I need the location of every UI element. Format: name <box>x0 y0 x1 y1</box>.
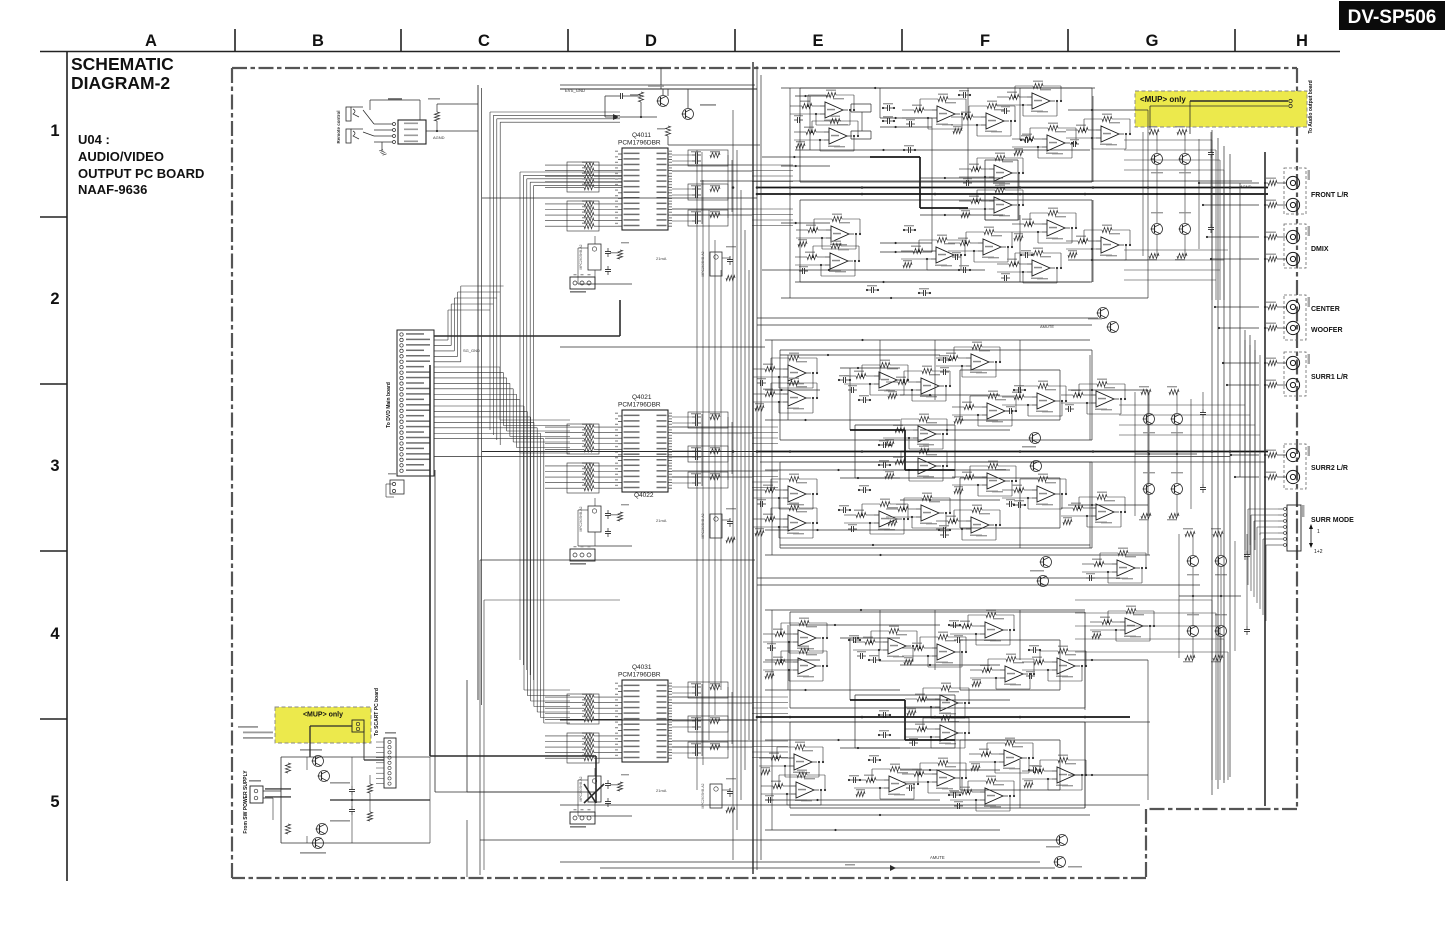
svg-text:Q4011: Q4011 <box>632 132 651 139</box>
svg-text:AUDIO/VIDEO: AUDIO/VIDEO <box>78 149 164 164</box>
svg-text:F: F <box>980 32 990 50</box>
svg-text:To SCART PC board: To SCART PC board <box>374 688 380 736</box>
svg-text:OUTPUT PC BOARD: OUTPUT PC BOARD <box>78 166 204 181</box>
svg-text:21mA: 21mA <box>656 788 667 793</box>
svg-text:2: 2 <box>50 290 59 308</box>
svg-text:Q4022: Q4022 <box>634 492 654 499</box>
svg-text:3: 3 <box>50 457 59 475</box>
svg-text:AGND: AGND <box>1240 184 1252 189</box>
svg-text:NAAF-9636: NAAF-9636 <box>78 182 147 197</box>
svg-text:21mA: 21mA <box>656 518 667 523</box>
svg-text:SURR MODE: SURR MODE <box>1311 517 1354 524</box>
svg-text:SURR1 L/R: SURR1 L/R <box>1311 374 1348 381</box>
svg-text:WOOFER: WOOFER <box>1311 327 1343 334</box>
svg-text:SURR2 L/R: SURR2 L/R <box>1311 465 1348 472</box>
svg-text:A: A <box>145 32 157 50</box>
svg-text:21mA: 21mA <box>656 256 667 261</box>
svg-text:SG_GND: SG_GND <box>463 348 480 353</box>
svg-text:E: E <box>812 32 823 50</box>
svg-text:DMIX: DMIX <box>1311 246 1329 253</box>
svg-text:C: C <box>478 32 490 50</box>
svg-text:<MUP> only: <MUP> only <box>303 712 343 719</box>
svg-text:1: 1 <box>50 122 59 140</box>
svg-text:Q4031: Q4031 <box>632 664 652 671</box>
svg-text:4: 4 <box>50 625 60 643</box>
svg-text:B: B <box>312 32 324 50</box>
svg-text:PCM1796DBR: PCM1796DBR <box>618 672 661 679</box>
svg-text:DIAGRAM-2: DIAGRAM-2 <box>71 73 170 93</box>
svg-text:FRONT L/R: FRONT L/R <box>1311 192 1348 199</box>
svg-text:To Audio output board: To Audio output board <box>1308 80 1314 133</box>
svg-text:PCM1796DBR: PCM1796DBR <box>618 140 661 147</box>
svg-text:AMUTE: AMUTE <box>930 855 945 860</box>
svg-text:<MUP> only: <MUP> only <box>1140 95 1186 104</box>
svg-text:5: 5 <box>50 793 59 811</box>
svg-text:D: D <box>645 32 657 50</box>
svg-text:DV-SP506: DV-SP506 <box>1348 7 1437 28</box>
svg-text:U04 :: U04 : <box>78 132 110 147</box>
svg-text:From SW POWER SUPPLY: From SW POWER SUPPLY <box>243 770 249 834</box>
svg-text:PCM1796DBR: PCM1796DBR <box>618 402 661 409</box>
svg-text:CENTER: CENTER <box>1311 306 1340 313</box>
svg-text:Q4021: Q4021 <box>632 394 652 401</box>
svg-text:To DVD Main board: To DVD Main board <box>386 382 392 428</box>
svg-text:1+2: 1+2 <box>1314 549 1323 555</box>
svg-text:G: G <box>1146 32 1159 50</box>
svg-text:SCHEMATIC: SCHEMATIC <box>71 54 174 74</box>
svg-text:H: H <box>1296 32 1308 50</box>
svg-text:Remote control: Remote control <box>336 110 341 143</box>
svg-text:AGND: AGND <box>433 135 445 140</box>
svg-text:1: 1 <box>1317 529 1320 535</box>
